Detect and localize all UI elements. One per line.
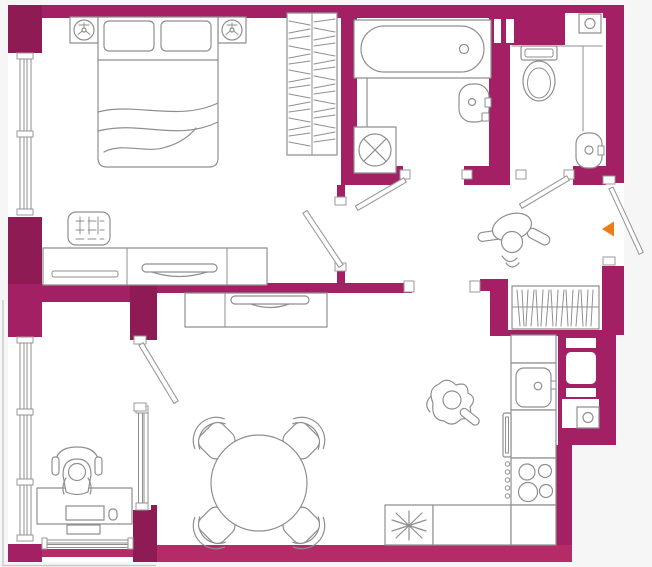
washbasin — [459, 84, 491, 122]
round-dining-table — [211, 435, 307, 531]
wardrobe-with-hangers — [287, 13, 337, 155]
opening-jamb — [404, 281, 414, 292]
office-bottom-window — [42, 538, 133, 549]
ventilation-unit-kitchen — [577, 407, 599, 428]
toilet — [521, 46, 557, 101]
kitchen-sink — [511, 363, 556, 410]
office-interior-window — [133, 406, 151, 510]
corner-washbasin — [576, 133, 604, 168]
bathtub — [354, 20, 491, 78]
person-at-desk — [63, 459, 91, 495]
keyboard — [66, 506, 104, 520]
tv-stand — [185, 293, 327, 327]
printer — [67, 525, 100, 534]
floor-plan-svg — [0, 0, 652, 567]
ventilation-unit-top — [579, 14, 601, 33]
corner-unit-star — [385, 505, 433, 545]
floor-plan — [0, 0, 652, 567]
table-lamp-left-icon — [74, 20, 94, 40]
countertop-bottom-1 — [433, 505, 511, 545]
stove-4-burners — [505, 458, 556, 505]
double-bed — [98, 17, 218, 167]
countertop-top — [511, 335, 556, 363]
dresser — [43, 248, 267, 285]
washing-machine — [354, 127, 396, 173]
coat-closet-hangers — [512, 286, 599, 329]
mouse — [109, 509, 117, 520]
opening-jamb — [470, 281, 480, 292]
ottoman — [68, 212, 110, 245]
countertop-bottom-2 — [511, 505, 556, 545]
dishwasher — [503, 410, 556, 458]
table-lamp-right-icon — [222, 20, 242, 40]
